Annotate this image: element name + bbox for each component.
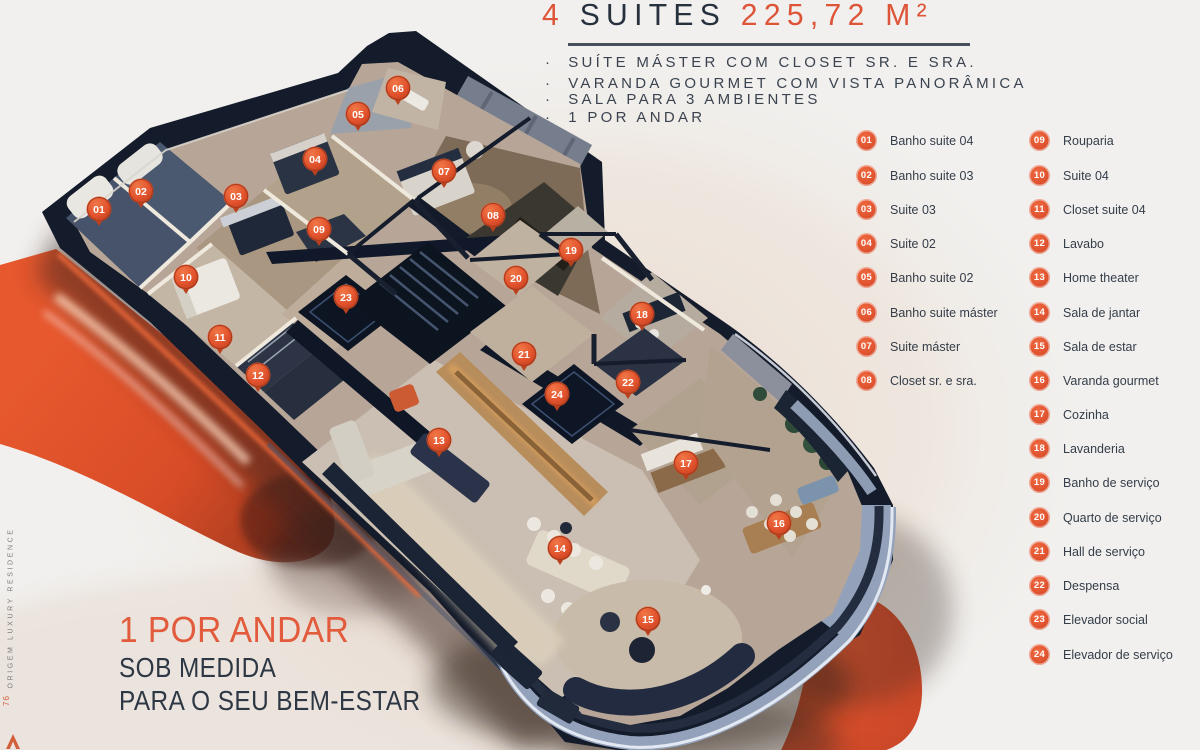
svg-text:22: 22 [622,377,634,389]
svg-text:14: 14 [554,543,566,555]
svg-text:24: 24 [551,389,563,401]
svg-text:11: 11 [214,332,225,344]
svg-text:09: 09 [313,224,325,236]
svg-text:12: 12 [252,370,264,382]
svg-text:01: 01 [93,204,105,216]
svg-text:07: 07 [438,166,450,178]
svg-text:18: 18 [636,309,648,321]
svg-text:10: 10 [180,272,192,284]
svg-text:05: 05 [352,109,364,121]
svg-text:06: 06 [392,83,404,95]
svg-text:21: 21 [518,349,530,361]
svg-text:16: 16 [773,518,785,530]
svg-text:04: 04 [309,154,321,166]
svg-text:02: 02 [135,186,147,198]
svg-text:17: 17 [680,458,692,470]
svg-text:15: 15 [642,614,654,626]
svg-text:23: 23 [340,292,352,304]
svg-text:08: 08 [487,210,499,222]
svg-text:13: 13 [433,435,445,447]
svg-text:19: 19 [565,245,577,257]
svg-text:03: 03 [230,191,242,203]
svg-text:20: 20 [510,273,522,285]
